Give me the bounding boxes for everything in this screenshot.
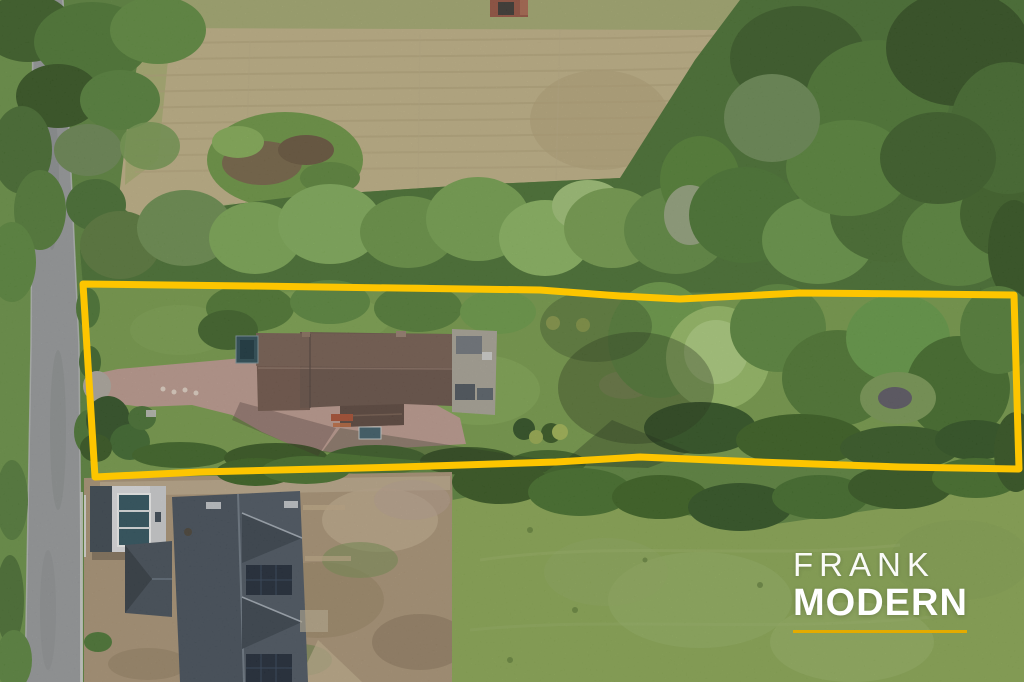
aerial-photo: FRANK MODERN bbox=[0, 0, 1024, 682]
agency-watermark-underline bbox=[793, 630, 967, 633]
agency-watermark-line2: MODERN bbox=[793, 584, 968, 622]
agency-watermark: FRANK MODERN bbox=[793, 548, 968, 633]
agency-watermark-line1: FRANK bbox=[793, 548, 968, 581]
